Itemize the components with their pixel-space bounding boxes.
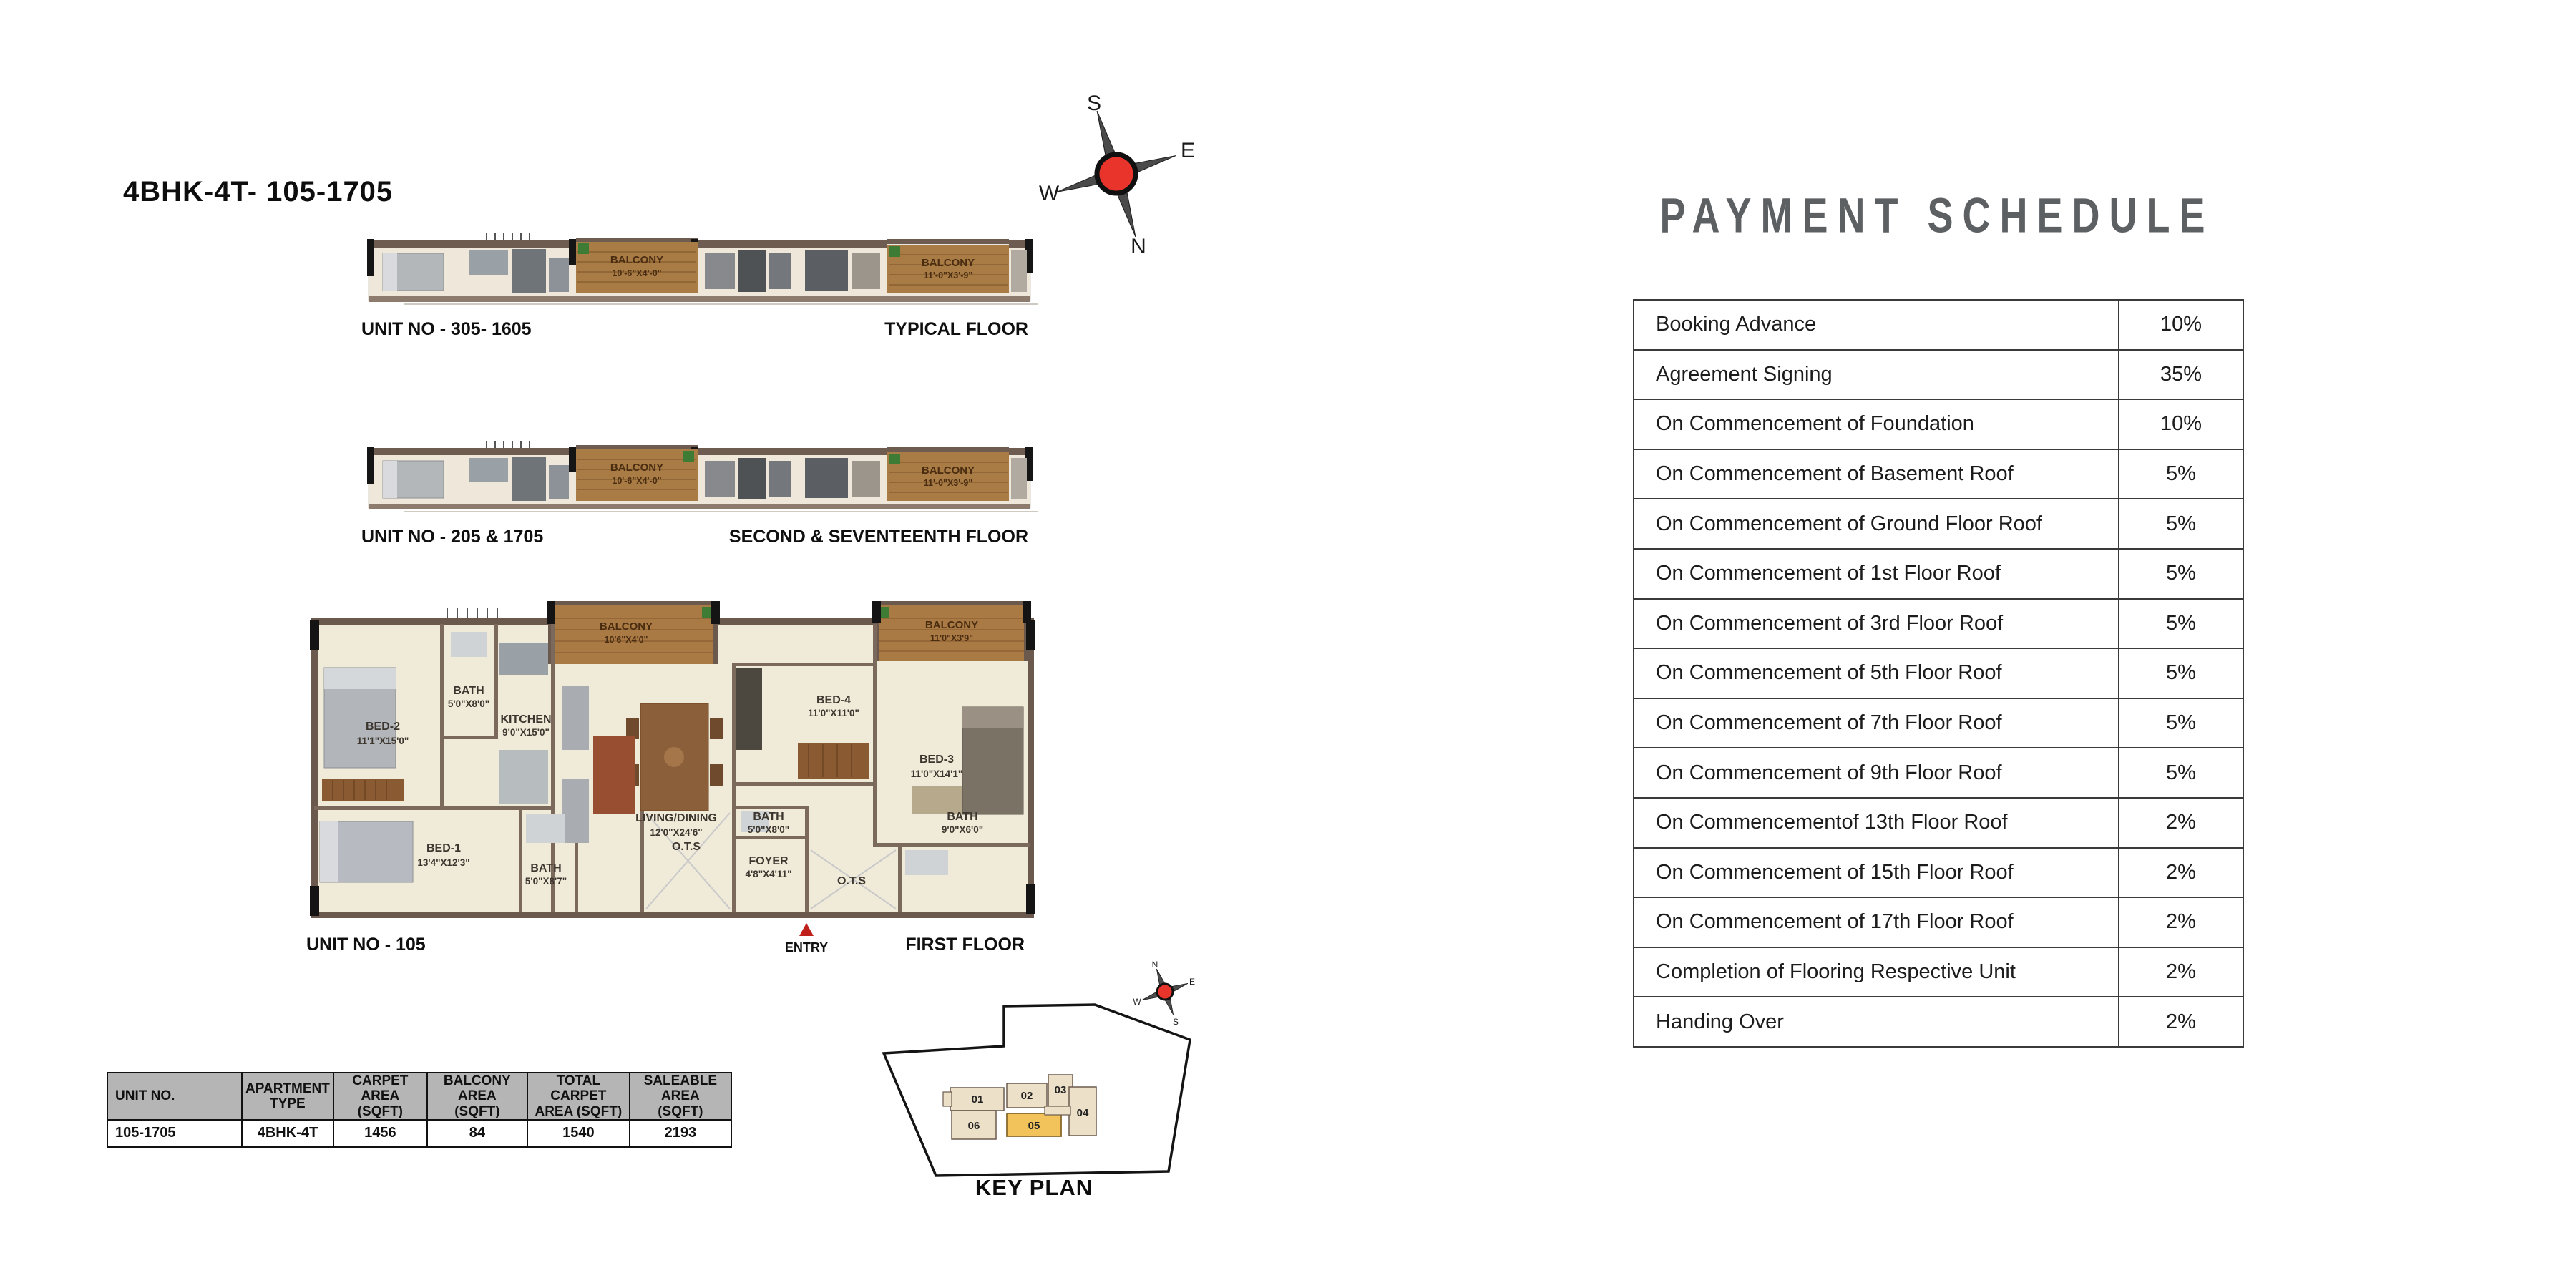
area-summary-table: UNIT NO. APARTMENT TYPE CARPET AREA (SQF… bbox=[107, 1072, 732, 1148]
payment-percentage: 2% bbox=[2118, 849, 2243, 897]
payment-percentage: 35% bbox=[2118, 351, 2243, 399]
room-label-bed1: BED-1 bbox=[426, 842, 461, 854]
unit-number-label: UNIT NO - 205 & 1705 bbox=[361, 527, 543, 547]
room-dims-bath-right: 9'0"X6'0" bbox=[942, 824, 983, 835]
payment-percentage: 5% bbox=[2118, 748, 2243, 797]
keyplan-unit-01: 01 bbox=[972, 1093, 984, 1106]
payment-milestone-label: On Commencement of 17th Floor Roof bbox=[1634, 898, 2118, 947]
room-dims-bed2: 11'1"X15'0" bbox=[357, 736, 409, 746]
keyplan-unit-03: 03 bbox=[1055, 1084, 1067, 1096]
keyplan-compass-n: N bbox=[1152, 960, 1158, 970]
room-dims-bath-top: 5'0"X8'0" bbox=[448, 698, 489, 709]
keyplan-unit-05: 05 bbox=[1028, 1120, 1040, 1132]
payment-row: Handing Over 2% bbox=[1634, 997, 2243, 1046]
payment-milestone-label: Agreement Signing bbox=[1634, 351, 2118, 399]
payment-percentage: 10% bbox=[2118, 301, 2243, 349]
col-header-carpet-area: CARPET AREA (SQFT) bbox=[333, 1073, 427, 1120]
balcony-dims: 11'-0"X3'-9" bbox=[924, 270, 973, 280]
room-label-living: LIVING/DINING bbox=[635, 812, 717, 824]
payment-percentage: 5% bbox=[2118, 699, 2243, 748]
room-dims-foyer: 4'8"X4'11" bbox=[745, 869, 791, 879]
payment-row: On Commencement of Foundation 10% bbox=[1634, 400, 2243, 450]
payment-row: On Commencement of Basement Roof 5% bbox=[1634, 450, 2243, 500]
room-dims-bed3: 11'0"X14'1" bbox=[911, 769, 963, 779]
compass-letter-e: E bbox=[1181, 139, 1195, 162]
room-label-ots-right: O.T.S bbox=[837, 875, 866, 887]
balcony-dims: 11'-0"X3'-9" bbox=[924, 478, 973, 488]
balcony-label: BALCONY bbox=[610, 462, 663, 474]
compass-letter-s: S bbox=[1087, 92, 1101, 115]
key-plan: 01 02 03 04 05 06 N E W S bbox=[866, 959, 1202, 1195]
payment-milestone-label: On Commencement of Basement Roof bbox=[1634, 450, 2118, 499]
area-table-data-row: 105-1705 4BHK-4T 1456 84 1540 2193 bbox=[107, 1120, 731, 1147]
balcony-label: BALCONY bbox=[922, 464, 975, 477]
area-table-header-row: UNIT NO. APARTMENT TYPE CARPET AREA (SQF… bbox=[107, 1073, 731, 1120]
balcony-label: BALCONY bbox=[610, 254, 663, 266]
unit-number-label: UNIT NO - 305- 1605 bbox=[361, 319, 532, 340]
payment-schedule-title: PAYMENT SCHEDULE bbox=[1633, 187, 2241, 244]
keyplan-compass-e: E bbox=[1189, 977, 1195, 987]
strip2-caption: UNIT NO - 205 & 1705 SECOND & SEVENTEENT… bbox=[361, 527, 1028, 547]
room-label-bath-right: BATH bbox=[947, 811, 977, 823]
payment-milestone-label: On Commencement of Ground Floor Roof bbox=[1634, 499, 2118, 548]
floorplan-first-floor: BALCONY 10'6"X4'0" BALCONY 11'0"X3'9" BE… bbox=[304, 600, 1041, 957]
cell-apartment-type: 4BHK-4T bbox=[242, 1120, 333, 1147]
keyplan-unit-06: 06 bbox=[968, 1120, 980, 1132]
payment-row: On Commencement of 5th Floor Roof 5% bbox=[1634, 649, 2243, 699]
col-header-balcony-area: BALCONY AREA (SQFT) bbox=[427, 1073, 527, 1120]
payment-milestone-label: On Commencement of 9th Floor Roof bbox=[1634, 748, 2118, 797]
room-label-bath-top: BATH bbox=[453, 685, 484, 697]
col-header-unit-no: UNIT NO. bbox=[107, 1073, 242, 1120]
room-dims-bath-mid: 5'0"X8'0" bbox=[748, 824, 789, 835]
floor-name-label: TYPICAL FLOOR bbox=[884, 319, 1028, 340]
room-label-ots-left: O.T.S bbox=[672, 841, 701, 853]
payment-milestone-label: On Commencement of 5th Floor Roof bbox=[1634, 649, 2118, 698]
col-header-apartment-type: APARTMENT TYPE bbox=[242, 1073, 333, 1120]
payment-percentage: 2% bbox=[2118, 997, 2243, 1046]
room-dims-bed1: 13'4"X12'3" bbox=[417, 857, 469, 868]
payment-milestone-label: On Commencement of Foundation bbox=[1634, 400, 2118, 449]
payment-row: On Commencement of 17th Floor Roof 2% bbox=[1634, 898, 2243, 948]
keyplan-unit-04: 04 bbox=[1077, 1107, 1089, 1119]
col-header-total-carpet-area: TOTAL CARPET AREA (SQFT) bbox=[527, 1073, 630, 1120]
payment-milestone-label: Completion of Flooring Respective Unit bbox=[1634, 948, 2118, 997]
payment-milestone-label: On Commencement of 1st Floor Roof bbox=[1634, 550, 2118, 598]
cell-carpet-area: 1456 bbox=[333, 1120, 427, 1147]
plan-title: 4BHK-4T- 105-1705 bbox=[123, 176, 393, 208]
balcony-dims: 11'0"X3'9" bbox=[930, 633, 973, 643]
payment-row: Completion of Flooring Respective Unit 2… bbox=[1634, 948, 2243, 998]
room-label-kitchen: KITCHEN bbox=[500, 713, 551, 726]
room-dims-bath-bl: 5'0"X8'7" bbox=[525, 876, 567, 887]
payment-percentage: 10% bbox=[2118, 400, 2243, 449]
cell-total-carpet-area: 1540 bbox=[527, 1120, 630, 1147]
brochure-page: 4BHK-4T- 105-1705 S E W N bbox=[0, 0, 2576, 1288]
payment-schedule-table: Booking Advance 10% Agreement Signing 35… bbox=[1633, 299, 2244, 1048]
floorplan-strip-second: BALCONY 10'-6"X4'-0" BALCONY 11'-0"X3'-9… bbox=[361, 436, 1038, 521]
room-label-bed2: BED-2 bbox=[366, 721, 400, 733]
payment-percentage: 2% bbox=[2118, 948, 2243, 997]
keyplan-compass-s: S bbox=[1173, 1017, 1179, 1027]
cell-saleable-area: 2193 bbox=[630, 1120, 731, 1147]
keyplan-unit-02: 02 bbox=[1021, 1090, 1033, 1102]
room-label-foyer: FOYER bbox=[748, 855, 789, 867]
room-label-bed4: BED-4 bbox=[816, 694, 851, 706]
compass-center bbox=[1097, 155, 1136, 193]
compass-rose: S E W N bbox=[1038, 92, 1202, 263]
room-label-bath-mid: BATH bbox=[753, 811, 784, 823]
unit-number-label: UNIT NO - 105 bbox=[306, 935, 426, 955]
payment-milestone-label: On Commencementof 13th Floor Roof bbox=[1634, 799, 2118, 847]
payment-percentage: 2% bbox=[2118, 898, 2243, 947]
payment-row: Agreement Signing 35% bbox=[1634, 351, 2243, 401]
compass-letter-w: W bbox=[1039, 182, 1060, 205]
payment-percentage: 5% bbox=[2118, 550, 2243, 598]
payment-percentage: 2% bbox=[2118, 799, 2243, 847]
payment-milestone-label: Booking Advance bbox=[1634, 301, 2118, 349]
payment-milestone-label: On Commencement of 15th Floor Roof bbox=[1634, 849, 2118, 897]
balcony-dims: 10'6"X4'0" bbox=[605, 635, 648, 645]
strip1-caption: UNIT NO - 305- 1605 TYPICAL FLOOR bbox=[361, 319, 1028, 340]
room-dims-kitchen: 9'0"X15'0" bbox=[502, 727, 550, 738]
payment-row: On Commencement of 3rd Floor Roof 5% bbox=[1634, 600, 2243, 650]
payment-row: On Commencement of 9th Floor Roof 5% bbox=[1634, 748, 2243, 799]
floor-name-label: SECOND & SEVENTEENTH FLOOR bbox=[729, 527, 1028, 547]
col-header-saleable-area: SALEABLE AREA (SQFT) bbox=[630, 1073, 731, 1120]
balcony-dims: 10'-6"X4'-0" bbox=[612, 476, 661, 486]
floorplan-strip-typical: BALCONY 10'-6"X4'-0" BALCONY 11'-0"X3'-9… bbox=[361, 229, 1038, 313]
payment-percentage: 5% bbox=[2118, 499, 2243, 548]
payment-milestone-label: On Commencement of 7th Floor Roof bbox=[1634, 699, 2118, 748]
keyplan-title: KEY PLAN bbox=[866, 1175, 1202, 1201]
cell-unit-no: 105-1705 bbox=[107, 1120, 242, 1147]
balcony-label: BALCONY bbox=[922, 257, 975, 269]
keyplan-compass-w: W bbox=[1133, 997, 1141, 1007]
payment-row: On Commencementof 13th Floor Roof 2% bbox=[1634, 799, 2243, 849]
room-dims-living: 12'0"X24'6" bbox=[650, 827, 702, 838]
payment-row: On Commencement of 7th Floor Roof 5% bbox=[1634, 699, 2243, 749]
balcony-label: BALCONY bbox=[600, 620, 653, 633]
balcony-dims: 10'-6"X4'-0" bbox=[612, 268, 661, 278]
room-label-bath-bl: BATH bbox=[530, 862, 561, 874]
room-dims-bed4: 11'0"X11'0" bbox=[808, 708, 859, 718]
payment-row: On Commencement of Ground Floor Roof 5% bbox=[1634, 499, 2243, 550]
payment-row: On Commencement of 15th Floor Roof 2% bbox=[1634, 849, 2243, 899]
floor-name-label: FIRST FLOOR bbox=[905, 935, 1025, 955]
payment-percentage: 5% bbox=[2118, 450, 2243, 499]
payment-percentage: 5% bbox=[2118, 600, 2243, 648]
balcony-label: BALCONY bbox=[925, 619, 978, 631]
payment-milestone-label: Handing Over bbox=[1634, 997, 2118, 1046]
payment-row: On Commencement of 1st Floor Roof 5% bbox=[1634, 550, 2243, 600]
room-label-bed3: BED-3 bbox=[919, 753, 954, 766]
payment-percentage: 5% bbox=[2118, 649, 2243, 698]
payment-milestone-label: On Commencement of 3rd Floor Roof bbox=[1634, 600, 2118, 648]
cell-balcony-area: 84 bbox=[427, 1120, 527, 1147]
mainplan-caption: UNIT NO - 105 FIRST FLOOR bbox=[306, 935, 1025, 955]
keyplan-compass: N E W S bbox=[1133, 960, 1196, 1027]
payment-row: Booking Advance 10% bbox=[1634, 301, 2243, 351]
compass-letter-n: N bbox=[1131, 235, 1146, 258]
